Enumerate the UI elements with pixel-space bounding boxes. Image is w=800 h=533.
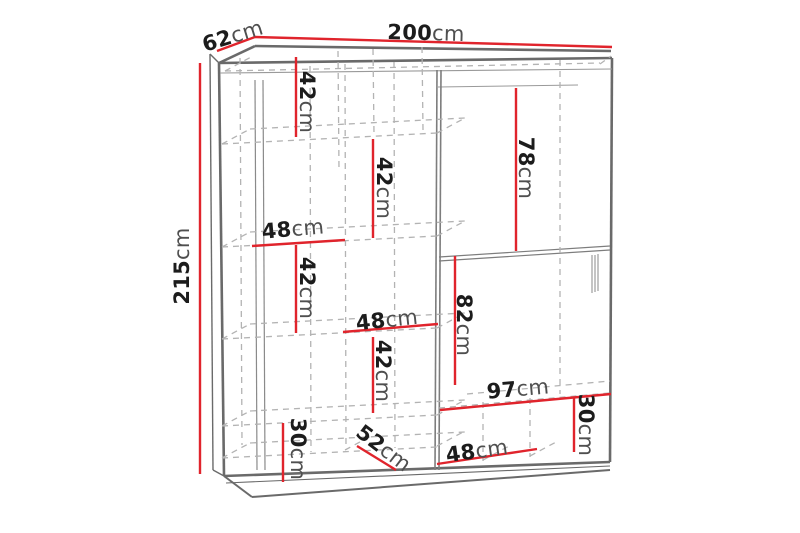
dim-label-height-215: 215cm (170, 227, 194, 304)
dimension-lines (200, 37, 612, 482)
dim-label-42-b: 42cm (372, 157, 396, 219)
dim-label-78: 78cm (514, 137, 538, 199)
dim-label-depth-62: 62cm (199, 15, 266, 56)
left-door-handle (255, 80, 265, 470)
dim-label-82: 82cm (452, 294, 476, 356)
wardrobe-diagram-page: 62cm 200cm 215cm 42cm 42cm 42cm 42cm 78c… (0, 0, 800, 533)
cabinet-outline (210, 46, 612, 497)
dim-label-30-b: 30cm (574, 394, 598, 456)
sliding-doors (220, 69, 612, 470)
right-door-handle (592, 254, 598, 293)
dim-label-42-d: 42cm (371, 340, 395, 402)
dim-label-48-b: 48cm (355, 305, 420, 335)
dim-label-42-a: 42cm (295, 71, 319, 133)
dim-label-48-c: 48cm (444, 435, 509, 467)
dim-label-width-200: 200cm (387, 20, 465, 46)
wardrobe-diagram: 62cm 200cm 215cm 42cm 42cm 42cm 42cm 78c… (0, 0, 800, 533)
dim-label-42-c: 42cm (295, 257, 319, 319)
dim-label-48-a: 48cm (261, 214, 325, 243)
dim-label-30-a: 30cm (286, 418, 310, 480)
